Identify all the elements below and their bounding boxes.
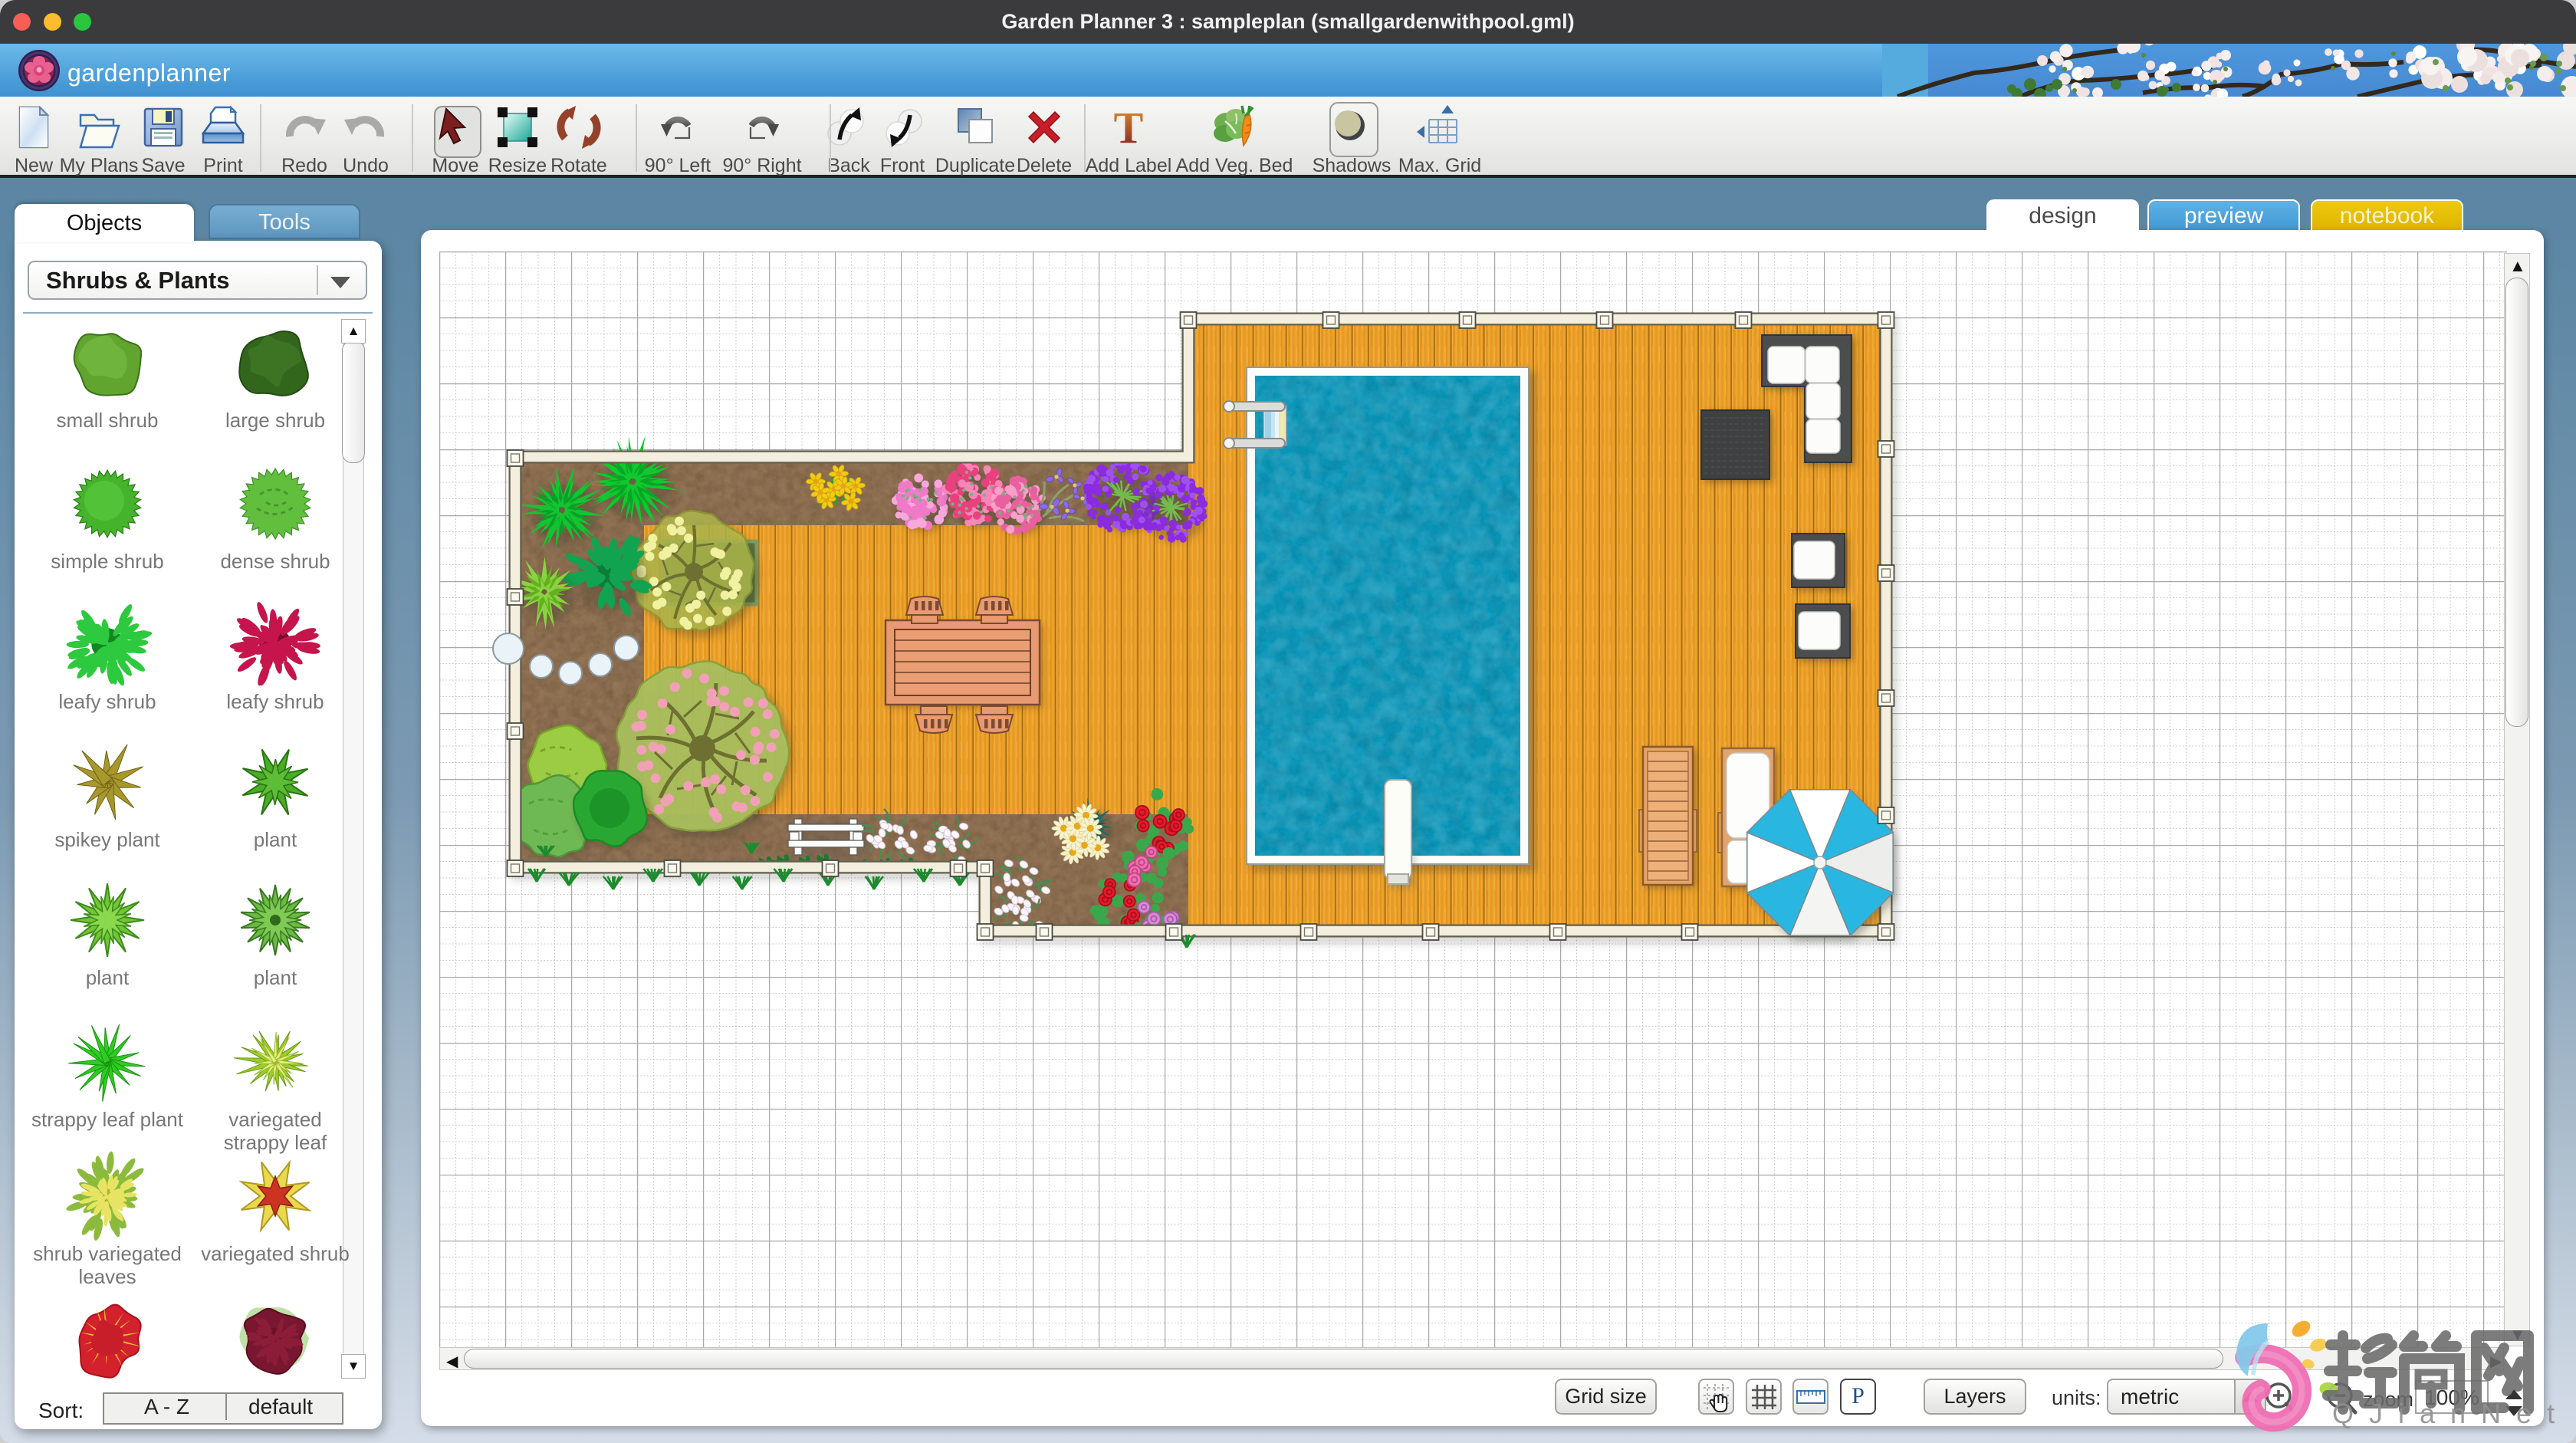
svg-text:T: T — [1114, 103, 1144, 152]
svg-text:QJianNet: QJianNet — [2332, 1398, 2570, 1429]
